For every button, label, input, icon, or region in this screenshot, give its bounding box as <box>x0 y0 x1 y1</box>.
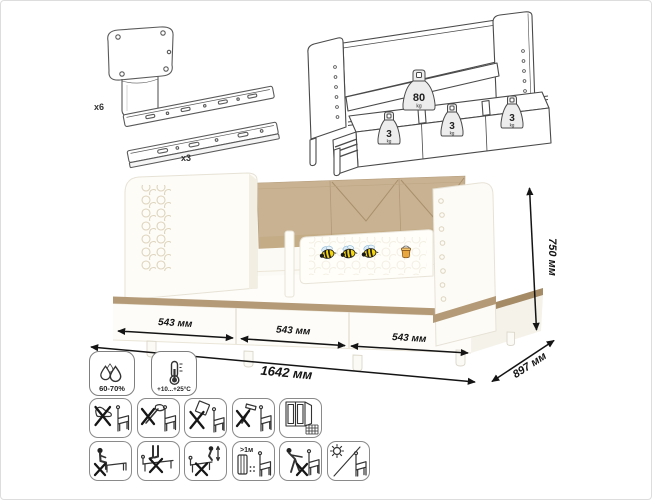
slide-rail-upper <box>123 86 274 127</box>
drawer-load-unit: kg <box>510 123 515 128</box>
total-width-label: 1642 мм <box>260 363 313 383</box>
slides-quantity-label: x3 <box>181 153 191 163</box>
no-shoes-icon <box>91 400 131 436</box>
care-row-2: >1м <box>89 441 370 481</box>
temperature-badge: +10...+25°C <box>151 351 197 396</box>
bed-load-unit: kg <box>416 104 422 110</box>
no-box-drop-icon <box>186 400 226 436</box>
pictogram-no-hammering <box>232 398 275 438</box>
drawer-load-unit: kg <box>450 131 455 136</box>
heater-distance-icon: >1м <box>233 443 273 479</box>
window-ventilation-icon <box>281 399 321 437</box>
load-capacity-diagram: 80 kg 3 kg 3 kg 3 kg <box>296 9 561 179</box>
no-axe-icon <box>138 400 178 436</box>
pictogram-no-jumping-on-bed <box>184 441 227 481</box>
pictogram-no-dragging-furniture <box>279 441 322 481</box>
temperature-label: +10...+25°C <box>157 386 191 393</box>
water-drops-icon <box>97 360 127 384</box>
no-sitting-icon <box>91 443 131 479</box>
pictogram-ventilate-room <box>279 398 322 438</box>
care-row-1 <box>89 398 370 438</box>
climate-conditions: 60-70% +10...+25°C <box>89 351 197 396</box>
pictogram-no-standing-on-bed <box>137 441 180 481</box>
pictogram-no-dropping-heavy-objects <box>184 398 227 438</box>
no-hammer-icon <box>233 400 273 436</box>
humidity-label: 60-70% <box>99 384 125 393</box>
no-standing-icon <box>138 443 178 479</box>
thermometer-icon <box>161 360 187 386</box>
drawer3-width-label: 543 мм <box>392 332 427 345</box>
no-sunlight-icon <box>328 443 368 479</box>
drawer2-width-label: 543 мм <box>276 324 311 337</box>
height-label: 750 мм <box>546 238 558 276</box>
right-headboard <box>433 183 496 346</box>
slide-rail-lower <box>127 122 279 168</box>
pictogram-keep-1m-from-heater: >1м <box>232 441 275 481</box>
instruction-sheet: x6 x3 <box>0 0 652 500</box>
drawer-load-unit: kg <box>387 139 392 144</box>
drawer-slides-diagram: x3 <box>113 71 293 171</box>
no-dragging-icon <box>281 443 321 479</box>
pictogram-no-sitting-on-edge <box>89 441 132 481</box>
heater-distance-label: >1м <box>240 447 253 454</box>
no-jumping-icon <box>186 443 226 479</box>
humidity-badge: 60-70% <box>89 351 135 396</box>
honey-pot-decal <box>401 246 410 258</box>
bed-load-value: 80 <box>413 92 425 104</box>
pictogram-avoid-direct-sunlight <box>327 441 370 481</box>
leg-quantity-label: x6 <box>94 102 104 112</box>
care-pictograms: >1м <box>89 398 370 481</box>
pictogram-no-shoes-on-bed <box>89 398 132 438</box>
drawer1-width-label: 543 мм <box>158 317 193 330</box>
honeycomb-pattern <box>141 185 171 271</box>
left-headboard <box>125 173 257 300</box>
pictogram-no-axe-impacts <box>137 398 180 438</box>
